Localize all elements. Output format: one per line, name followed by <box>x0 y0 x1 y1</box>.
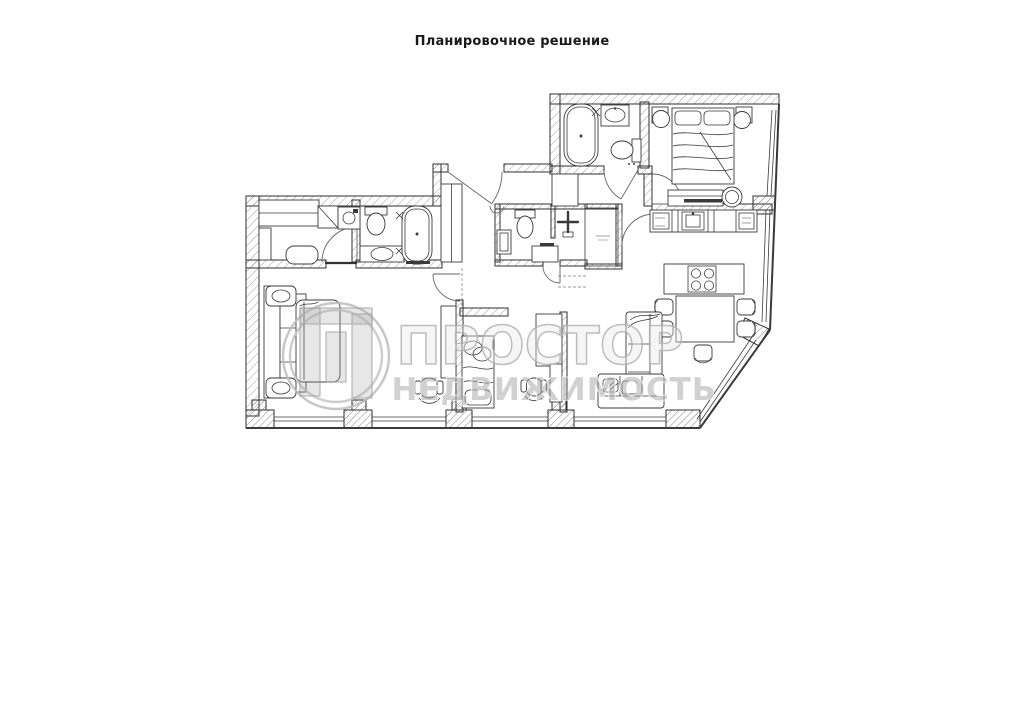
washbasin-icon <box>601 105 629 126</box>
washbasin-icon <box>360 246 404 262</box>
washbasin-icon <box>532 243 558 262</box>
door-arc <box>622 214 654 246</box>
door-arc <box>604 170 638 199</box>
wardrobe-icon <box>441 184 462 262</box>
washing-machine-icon <box>318 206 360 229</box>
watermark: ПРОСТОР НЕДВИЖИМОСТЬ <box>283 303 716 409</box>
floor-plan-page: Планировочное решение <box>0 0 1024 724</box>
bedroom <box>652 107 752 207</box>
dresser-icon <box>668 190 723 206</box>
wardrobe-icon <box>259 200 319 226</box>
floor-plan-drawing: ПРОСТОР НЕДВИЖИМОСТЬ <box>0 0 1024 724</box>
stool-icon <box>722 187 742 207</box>
cooktop-island-icon <box>664 264 744 294</box>
toilet-icon <box>515 210 535 238</box>
bathtub-icon <box>564 104 600 166</box>
toilet-icon <box>611 139 641 165</box>
watermark-brand: ПРОСТОР <box>396 316 683 377</box>
wardrobe-icon <box>552 174 578 206</box>
cabinet-icon <box>497 230 511 254</box>
shower-cross-icon <box>558 212 578 237</box>
bathroom-left <box>360 206 432 264</box>
door-arc <box>543 266 560 283</box>
double-bed-icon <box>672 108 734 184</box>
wardrobe-icon <box>259 228 271 260</box>
ottoman-icon <box>286 246 318 264</box>
bathroom-top <box>564 104 641 166</box>
kitchen-counter-icon <box>650 210 757 232</box>
door-arc <box>433 274 460 301</box>
dining-table-icon <box>676 296 734 342</box>
toilet-icon <box>365 207 387 235</box>
closet <box>585 208 618 266</box>
watermark-tagline: НЕДВИЖИМОСТЬ <box>392 372 717 408</box>
wc <box>497 210 578 262</box>
